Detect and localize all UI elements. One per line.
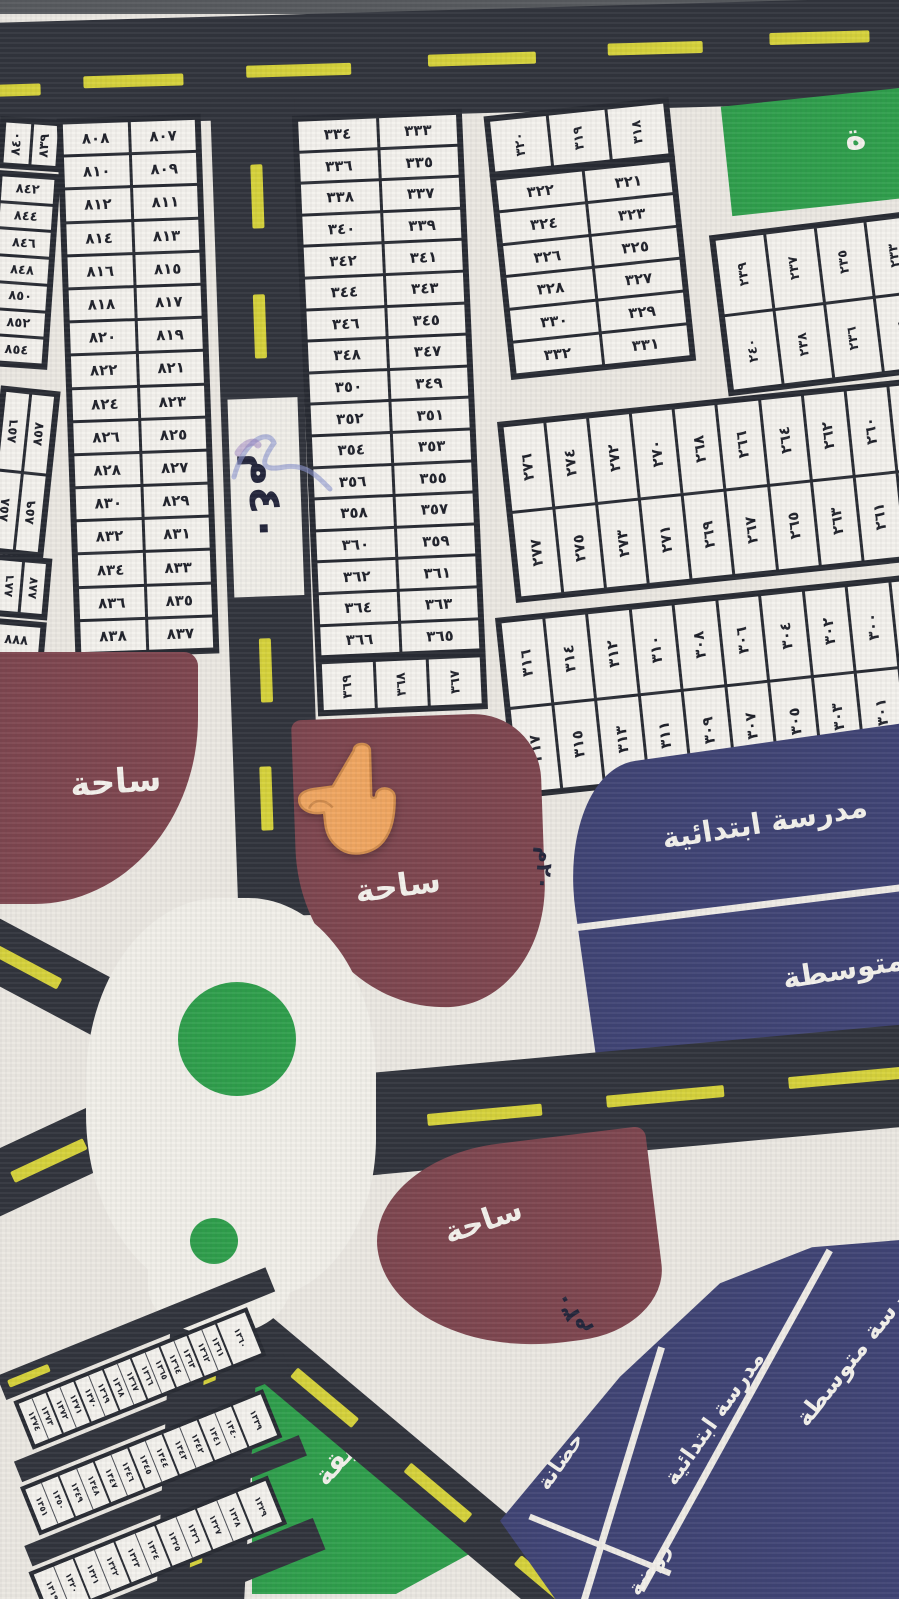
plot-cell: ٨٢٧ xyxy=(142,452,208,484)
lane-dash xyxy=(83,73,183,88)
plot-cell: ٣٣٦ xyxy=(300,150,379,182)
plot-cell: ٨٣١ xyxy=(144,518,210,550)
lane-dash xyxy=(769,30,869,45)
plot-cell: ٨٠٩ xyxy=(131,153,197,185)
street-width-marker-20m: ٢٠م xyxy=(529,846,558,891)
plot-cell: ٢٣٨ xyxy=(775,305,831,384)
plot-cell: ٨٤٢ xyxy=(1,176,55,203)
plot-cell: ٨٣٥ xyxy=(147,584,213,616)
plot-cell: ٨٢٠ xyxy=(70,321,136,353)
plot-grid-east-1: ٢٧٦٢٧٤٢٧٢٢٧٠٢٦٨٢٦٦٢٦٤٢٦٢٢٦٠٢٥٨ ٢٧٧٢٧٥٢٧٣… xyxy=(497,376,899,603)
plot-cell: ٨٢٥ xyxy=(141,418,207,450)
plot-row: ٣٣٤ ٣٣٣ xyxy=(298,115,457,150)
plot-cell: ٨٢٣ xyxy=(140,385,206,417)
plot-row: ٨٢٤ ٨٢٣ xyxy=(72,385,205,420)
plot-cell: ٣٢٤ xyxy=(500,204,588,243)
plot-row: ٣٦٢ ٣٦١ xyxy=(317,557,476,592)
plot-cell: ٨٥٢ xyxy=(0,310,45,337)
plot-cell: ٢٦١ xyxy=(855,473,899,560)
plot-cell: ٨١٧ xyxy=(136,286,202,318)
plot-cell: ٣٦٥ xyxy=(401,620,480,652)
plot-cell: ٢٧٠ xyxy=(632,410,681,497)
plot-cell: ٢٦٣ xyxy=(813,478,862,565)
plot-cell: ٨٣٧ xyxy=(148,617,214,649)
plot-cell: ٨٥٤ xyxy=(0,336,43,363)
plot-row: ٣٦٤ ٣٦٣ xyxy=(319,588,478,623)
plot-cell: ٨٤٨ xyxy=(0,256,49,283)
plot-cell: ٣٤١ xyxy=(384,241,463,273)
plot-cell: ٣٦١ xyxy=(398,557,477,589)
lane-dash xyxy=(0,942,62,989)
plot-cell: ٣٥٠ xyxy=(309,371,388,403)
plot-row: ٣٣٨ ٣٣٧ xyxy=(301,178,460,213)
plot-row: ٨١٢ ٨١١ xyxy=(65,186,198,221)
plot-cell: ٨٨٦ xyxy=(0,560,22,612)
plot-cell: ٨٠٧ xyxy=(130,120,196,152)
plot-cell: ٨٣٢ xyxy=(77,520,143,552)
plot-cell: ٣٤٣ xyxy=(385,273,464,305)
plot-cell: ٣٦٨ xyxy=(375,660,428,708)
plot-cell: ٣٥٣ xyxy=(392,430,471,462)
plot-cell: ٣٦٧ xyxy=(429,657,482,705)
plot-cell: ٣٢٥ xyxy=(591,228,679,267)
plot-cell: ٣٢٨ xyxy=(507,269,595,308)
plot-cell: ٢٦٧ xyxy=(727,487,776,574)
plot-cell: ٣٣٢ xyxy=(513,335,601,374)
plot-row: ٣٤٦ ٣٤٥ xyxy=(306,304,465,339)
plot-cell: ٢٧٧ xyxy=(513,509,562,596)
plot-cell: ٣٥٩ xyxy=(397,525,476,557)
plot-row: ٨٣٢ ٨٣١ xyxy=(77,518,210,553)
plot-cell: ٢٦٥ xyxy=(770,482,819,569)
plot-cell: ٣٦٦ xyxy=(320,623,399,655)
plot-cell: ٣١٩ xyxy=(549,110,610,166)
plot-row: ٨٣٦ ٨٣٥ xyxy=(79,584,212,619)
plot-cell: ٨٢٨ xyxy=(74,454,140,486)
plot-cell: ٢٧٦ xyxy=(504,423,553,510)
plot-cell: ٨٤٠ xyxy=(4,122,31,164)
elementary-school-label: مدرسة ابتدائية xyxy=(660,789,870,855)
plot-cell: ٢٧٤ xyxy=(546,419,595,506)
plot-cell: ٣١٦ xyxy=(502,619,551,706)
plot-cell: ٨٤٦ xyxy=(0,230,51,257)
plot-cell: ٣٢٦ xyxy=(503,237,591,276)
plot-cell: ٣٥٥ xyxy=(394,462,473,494)
school-band-divider xyxy=(571,874,899,932)
plot-column: ٨٤٢٨٤٤٨٤٦٨٤٨٨٥٠٨٥٢٨٥٤ xyxy=(0,170,61,370)
plot-cell: ٣٥٨ xyxy=(315,497,394,529)
plaza-west: ساحة xyxy=(0,652,198,904)
plot-cell: ٣٦٢ xyxy=(317,560,396,592)
plot-cell: ٨١١ xyxy=(133,186,199,218)
plot-row: ٨١٦ ٨١٥ xyxy=(67,253,200,288)
plot-row: ٣٥٢ ٣٥١ xyxy=(311,399,470,434)
plot-cell: ٢٣٥ xyxy=(816,223,872,302)
plot-cell: ٣٣٥ xyxy=(380,146,459,178)
plot-cell: ٣٠٨ xyxy=(675,601,724,688)
plot-cell: ٨٤٤ xyxy=(0,203,53,230)
plaza-center-label: ساحة xyxy=(353,861,443,911)
plot-header-row: ٨٤٠٨٣٩ xyxy=(0,116,65,172)
plot-row: ٣٤٤ ٣٤٣ xyxy=(305,273,464,308)
plot-cell: ٣٢٠ xyxy=(490,116,551,172)
plot-block-west-quad: ٨٥٦ ٨٥٧ ٨٥٨ ٨٥٩ xyxy=(0,385,61,558)
plot-cell: ٨٣٠ xyxy=(76,487,142,519)
plot-cell: ٢٧٢ xyxy=(589,414,638,501)
plot-cell: ٨١٦ xyxy=(67,255,133,287)
plot-cell: ٣١٤ xyxy=(545,615,594,702)
plot-cell: ٨٣٦ xyxy=(79,587,145,619)
plot-cell: ٣٠٠ xyxy=(848,583,897,670)
plot-cell: ٢٣٧ xyxy=(766,229,822,308)
plot-cell: ٨١٨ xyxy=(69,288,135,320)
lane-dash xyxy=(259,638,273,702)
plot-row: ٣٤٢ ٣٤١ xyxy=(304,241,463,276)
roundabout-green-island-large xyxy=(178,982,296,1096)
plot-cell: ٣٣٣ xyxy=(379,115,458,147)
plot-cell: ٨١٥ xyxy=(135,253,201,285)
plot-cell: ٨٥٠ xyxy=(0,283,47,310)
plot-cell: ٣٥٧ xyxy=(395,494,474,526)
plot-row: ٨٢٢ ٨٢١ xyxy=(71,352,204,387)
plot-cell: ٢٤٠ xyxy=(725,311,781,390)
plot-cell: ٣٤٢ xyxy=(304,245,383,277)
plot-cell: ٣١٨ xyxy=(607,104,668,160)
lane-dash xyxy=(10,1138,88,1183)
plaza-west-label: ساحة xyxy=(69,759,163,805)
plot-cell: ٨١٤ xyxy=(66,222,132,254)
plot-cell: ٨٣٤ xyxy=(78,553,144,585)
plot-cell: ٣٣٧ xyxy=(381,178,460,210)
plot-cell: ٣٤٨ xyxy=(308,339,387,371)
plot-cell: ٨٠٨ xyxy=(63,122,129,154)
plot-cell: ٢٧٣ xyxy=(598,500,647,587)
plot-cell: ٢٦٤ xyxy=(761,396,810,483)
plot-row: ٣٥٨ ٣٥٧ xyxy=(315,494,474,529)
plot-cell: ٣٤٦ xyxy=(306,308,385,340)
plot-cell: ٣٠٦ xyxy=(718,596,767,683)
lane-dash xyxy=(250,164,264,228)
plot-cell: ٣٠٤ xyxy=(761,592,810,679)
plot-cell: ٣٥٤ xyxy=(312,434,391,466)
plot-cell: ٣٦٣ xyxy=(399,588,478,620)
lane-dash xyxy=(606,1085,725,1108)
plot-row: ٨١٠ ٨٠٩ xyxy=(64,153,197,188)
lane-dash xyxy=(427,1104,543,1126)
plot-cell: ٨١٣ xyxy=(134,219,200,251)
plot-cell: ٢٣٣ xyxy=(867,216,899,295)
plot-cell: ٣٥١ xyxy=(391,399,470,431)
plot-cell: ٨١٢ xyxy=(65,189,131,221)
lane-dash xyxy=(428,52,536,67)
lane-dash xyxy=(7,1364,51,1388)
plot-cell: ٨٥٩ xyxy=(15,474,45,552)
plot-cell: ٣٢٧ xyxy=(595,260,683,299)
plot-row: ٣٤٠ ٣٣٩ xyxy=(302,210,461,245)
plot-cell: ٢٦٩ xyxy=(684,491,733,578)
plot-row: ٣٥٤ ٣٥٣ xyxy=(312,430,471,465)
plot-cell: ٢٧١ xyxy=(641,496,690,583)
plot-row: ٣٦٦ ٣٦٥ xyxy=(320,620,479,655)
plot-cell: ٣٣٤ xyxy=(298,118,377,150)
plot-cell: ٣٦٤ xyxy=(319,592,398,624)
roundabout-green-island-small xyxy=(190,1218,238,1264)
plot-cell: ٣٤٠ xyxy=(302,213,381,245)
plot-cell: ٣٢٣ xyxy=(588,195,676,234)
plot-block-west-edge: ٨٤٠٨٣٩ ٨٤٢٨٤٤٨٤٦٨٤٨٨٥٠٨٥٢٨٥٤ xyxy=(0,116,65,368)
plot-cell: ٣٤٧ xyxy=(388,336,467,368)
plot-row: ٨١٨ ٨١٧ xyxy=(69,286,202,321)
plot-cell: ٣١٥ xyxy=(554,701,603,788)
plot-row: ٨٠٨ ٨٠٧ xyxy=(63,120,196,155)
plot-grid-west: ٨٠٨ ٨٠٧ ٨١٠ ٨٠٩ ٨١٢ ٨١١ ٨١٤ ٨١٣ ٨١٦ ٨١٥ … xyxy=(57,114,220,659)
garden-strip-label-partial: ة xyxy=(843,116,868,159)
plot-cell: ٢٦٦ xyxy=(718,401,767,488)
subdivision-plot-map: ٤٠م ٨٤٠٨٣٩ ٨٤٢٨٤٤٨٤٦٨٤٨٨٥٠٨٥٢٨٥٤ ٨٠٨ ٨٠٧… xyxy=(0,0,899,1599)
lane-dash xyxy=(246,63,351,78)
plot-cell: ٢٣٩ xyxy=(716,235,772,314)
plot-cell: ٨٢٢ xyxy=(71,354,137,386)
plot-cell: ٢٦٠ xyxy=(846,387,895,474)
plot-cell: ٨١٩ xyxy=(137,319,203,351)
plot-grid-northeast: ٣٢٠٣١٩٣١٨ ٣٢٢ ٣٢١ ٣٢٤ ٣٢٣ ٣٢٦ ٣٢٥ ٣٢٨ ٣٢… xyxy=(484,97,697,383)
plot-cell: ٢٦٨ xyxy=(675,405,724,492)
plot-cell: ٨٣٨ xyxy=(80,620,146,652)
plot-cell: ٣٣١ xyxy=(601,326,689,365)
middle-school-label-partial: ة متوسطة xyxy=(780,939,899,996)
plot-cell: ٢٣٦ xyxy=(826,298,882,377)
plot-row: ٣٦٠ ٣٥٩ xyxy=(316,525,475,560)
street-sign-text: ٤٠م xyxy=(237,451,294,543)
plot-cell: ٣٥٢ xyxy=(311,402,390,434)
plot-row: ٨١٤ ٨١٣ xyxy=(66,219,199,254)
plot-cell: ٣٣٩ xyxy=(383,210,462,242)
plot-cell: ٣٢٢ xyxy=(496,172,584,211)
plot-row: ٣٣٦ ٣٣٥ xyxy=(300,146,459,181)
plot-cell: ٣٤٥ xyxy=(387,304,466,336)
plot-grid-center: ٣٣٤ ٣٣٣ ٣٣٦ ٣٣٥ ٣٣٨ ٣٣٧ ٣٤٠ ٣٣٩ ٣٤٢ ٣٤١ … xyxy=(292,109,488,720)
plot-cell: ٣٣٨ xyxy=(301,181,380,213)
plot-cell: ٣٤٩ xyxy=(390,367,469,399)
plot-cell: ٢٦٢ xyxy=(804,392,853,479)
plot-row: ٨٢٨ ٨٢٧ xyxy=(74,452,207,487)
plot-cell: ٣٣٠ xyxy=(510,302,598,341)
lane-dash xyxy=(0,83,41,96)
lane-dash xyxy=(253,294,267,358)
plot-cell: ٣٢٩ xyxy=(598,293,686,332)
plot-cell: ٨٣٩ xyxy=(31,124,58,166)
plot-grid-rows: ٨٠٨ ٨٠٧ ٨١٠ ٨٠٩ ٨١٢ ٨١١ ٨١٤ ٨١٣ ٨١٦ ٨١٥ … xyxy=(57,114,220,659)
plot-cell: ٣١٢ xyxy=(588,610,637,697)
street-sign-box: ٤٠م xyxy=(227,397,304,597)
plot-cell: ٣٦٩ xyxy=(322,662,375,710)
plot-row: ٨٣٠ ٨٢٩ xyxy=(76,485,209,520)
plot-cell: ٨٢٤ xyxy=(72,388,138,420)
plot-cell: ٨٨٧ xyxy=(20,562,46,614)
plot-row: ٣٤٨ ٣٤٧ xyxy=(308,336,467,371)
plot-cell: ٢٧٥ xyxy=(555,505,604,592)
plot-row: ٨٢٦ ٨٢٥ xyxy=(73,418,206,453)
plot-block-west-pair: ٨٨٦٨٨٧ ٨٨٨ xyxy=(0,554,52,663)
lane-dash xyxy=(788,1067,899,1089)
plot-cell: ٨٢١ xyxy=(138,352,204,384)
plot-grid-far-northeast: ٢٣٩٢٣٧٢٣٥٢٣٣ ٢٤٠٢٣٨٢٣٦٢٣٤ xyxy=(709,210,899,397)
plot-cell: ٣٦٠ xyxy=(316,529,395,561)
plot-cell: ٣٠٢ xyxy=(804,587,853,674)
plot-cell: ٣٥٦ xyxy=(313,466,392,498)
plot-row: ٨٣٨ ٨٣٧ xyxy=(80,617,213,652)
plot-row: ٨٢٠ ٨١٩ xyxy=(70,319,203,354)
plot-row: ٨٣٤ ٨٣٣ xyxy=(78,551,211,586)
plot-row: ٣٥٦ ٣٥٥ xyxy=(313,462,472,497)
plot-cell: ٣٤٤ xyxy=(305,276,384,308)
plot-cell: ٨٢٩ xyxy=(143,485,209,517)
plot-cell: ٨٣٣ xyxy=(145,551,211,583)
plot-cell: ٨٥٧ xyxy=(24,395,54,473)
plot-cell: ٨٢٦ xyxy=(73,421,139,453)
plot-cell: ٣٢١ xyxy=(584,162,672,201)
plot-cell: ٣١٠ xyxy=(631,605,680,692)
plot-row: ٣٥٠ ٣٤٩ xyxy=(309,367,468,402)
lane-dash xyxy=(259,766,273,830)
lane-dash xyxy=(608,41,703,56)
garden-strip-northeast: ة xyxy=(721,86,899,216)
plot-cell: ٨١٠ xyxy=(64,155,130,187)
